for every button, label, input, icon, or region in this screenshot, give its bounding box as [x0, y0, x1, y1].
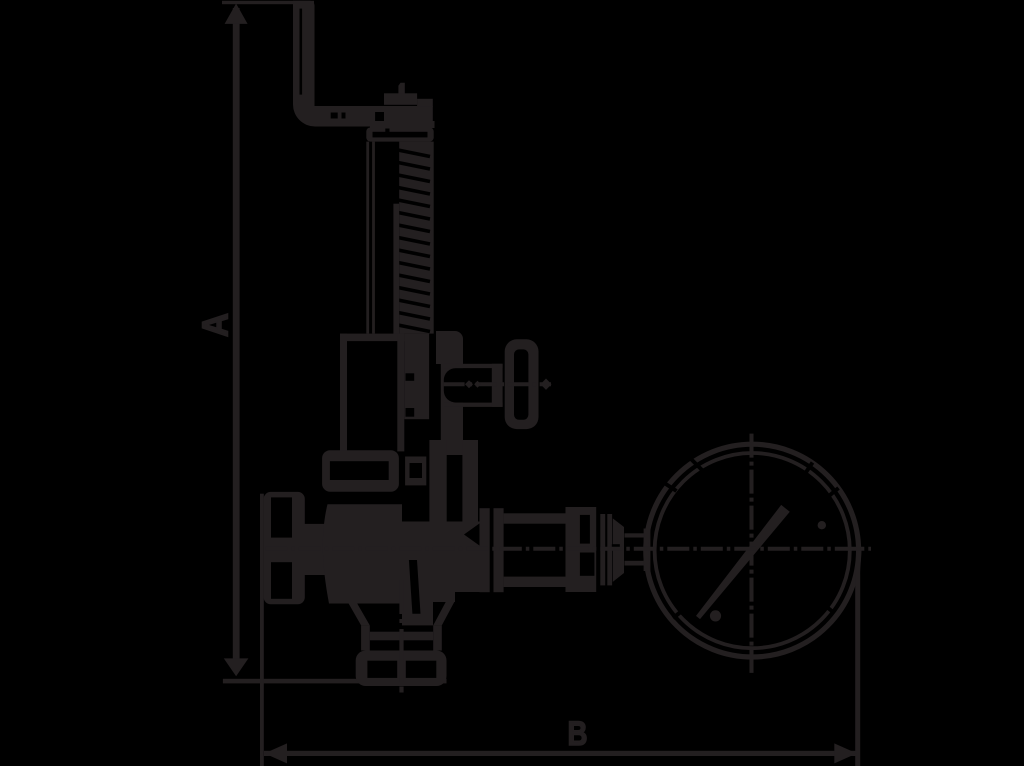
svg-text:A: A [195, 313, 236, 337]
svg-text:B: B [568, 715, 588, 753]
